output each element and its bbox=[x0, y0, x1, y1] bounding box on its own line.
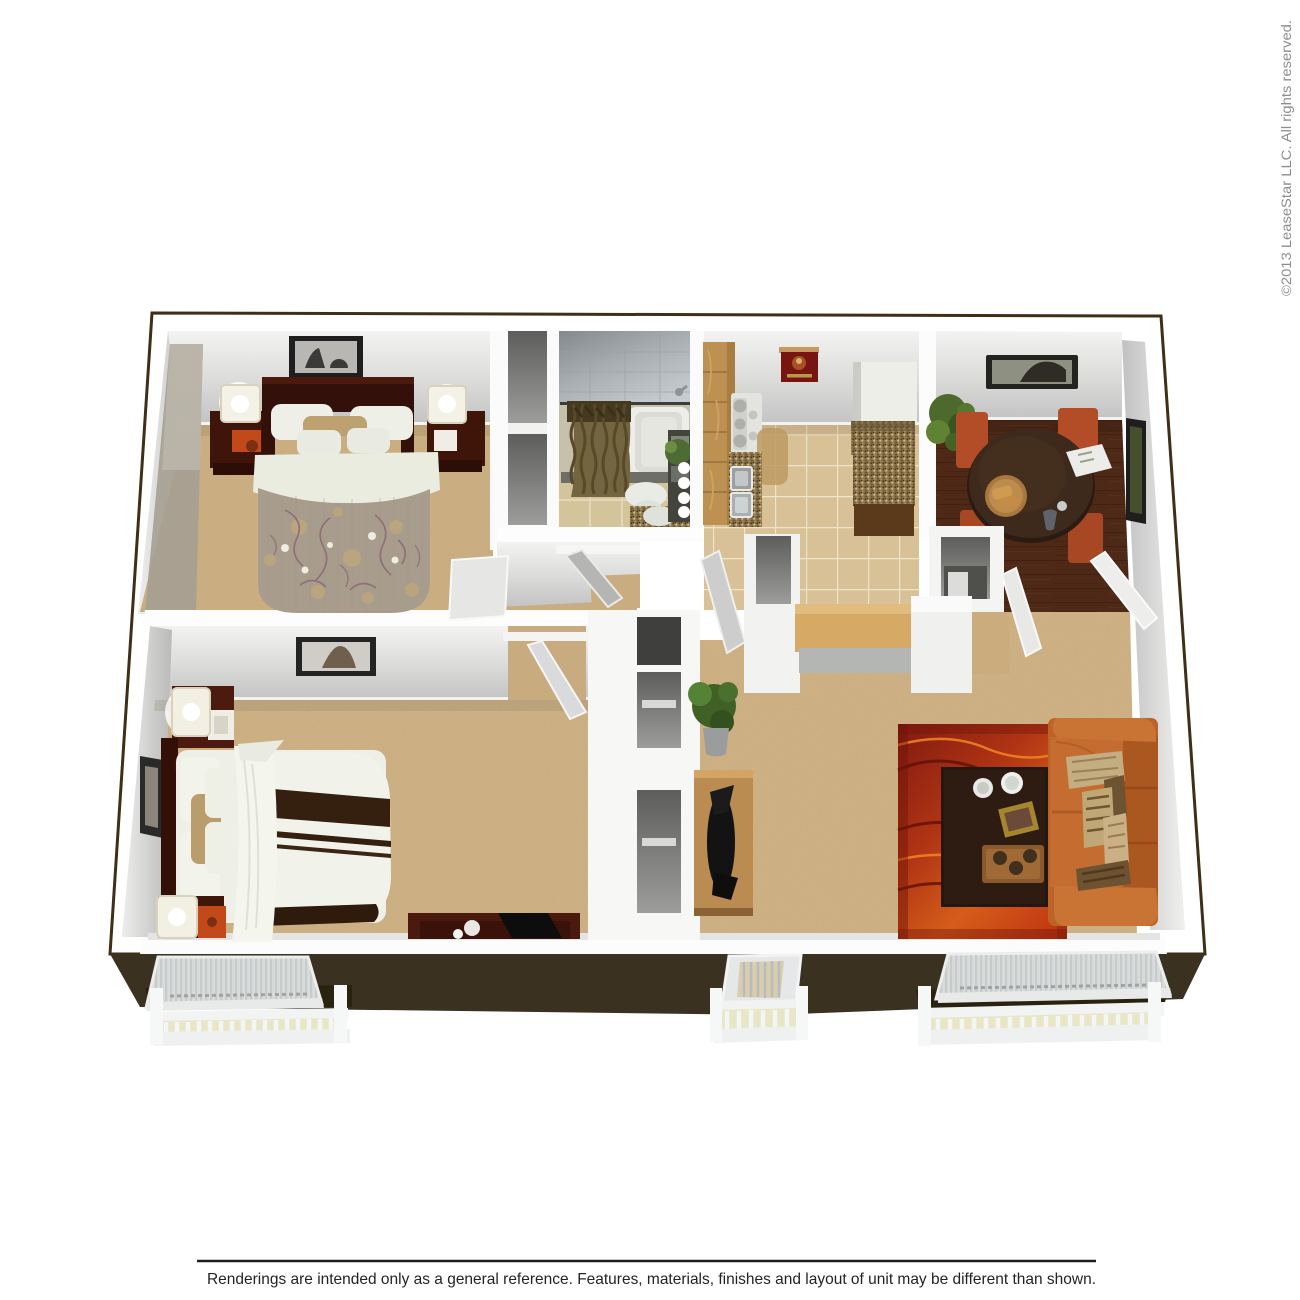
svg-text:©2013 LeaseStar LLC. All right: ©2013 LeaseStar LLC. All rights reserved… bbox=[1279, 20, 1294, 296]
svg-text:Renderings are intended only a: Renderings are intended only as a genera… bbox=[207, 1271, 1096, 1288]
